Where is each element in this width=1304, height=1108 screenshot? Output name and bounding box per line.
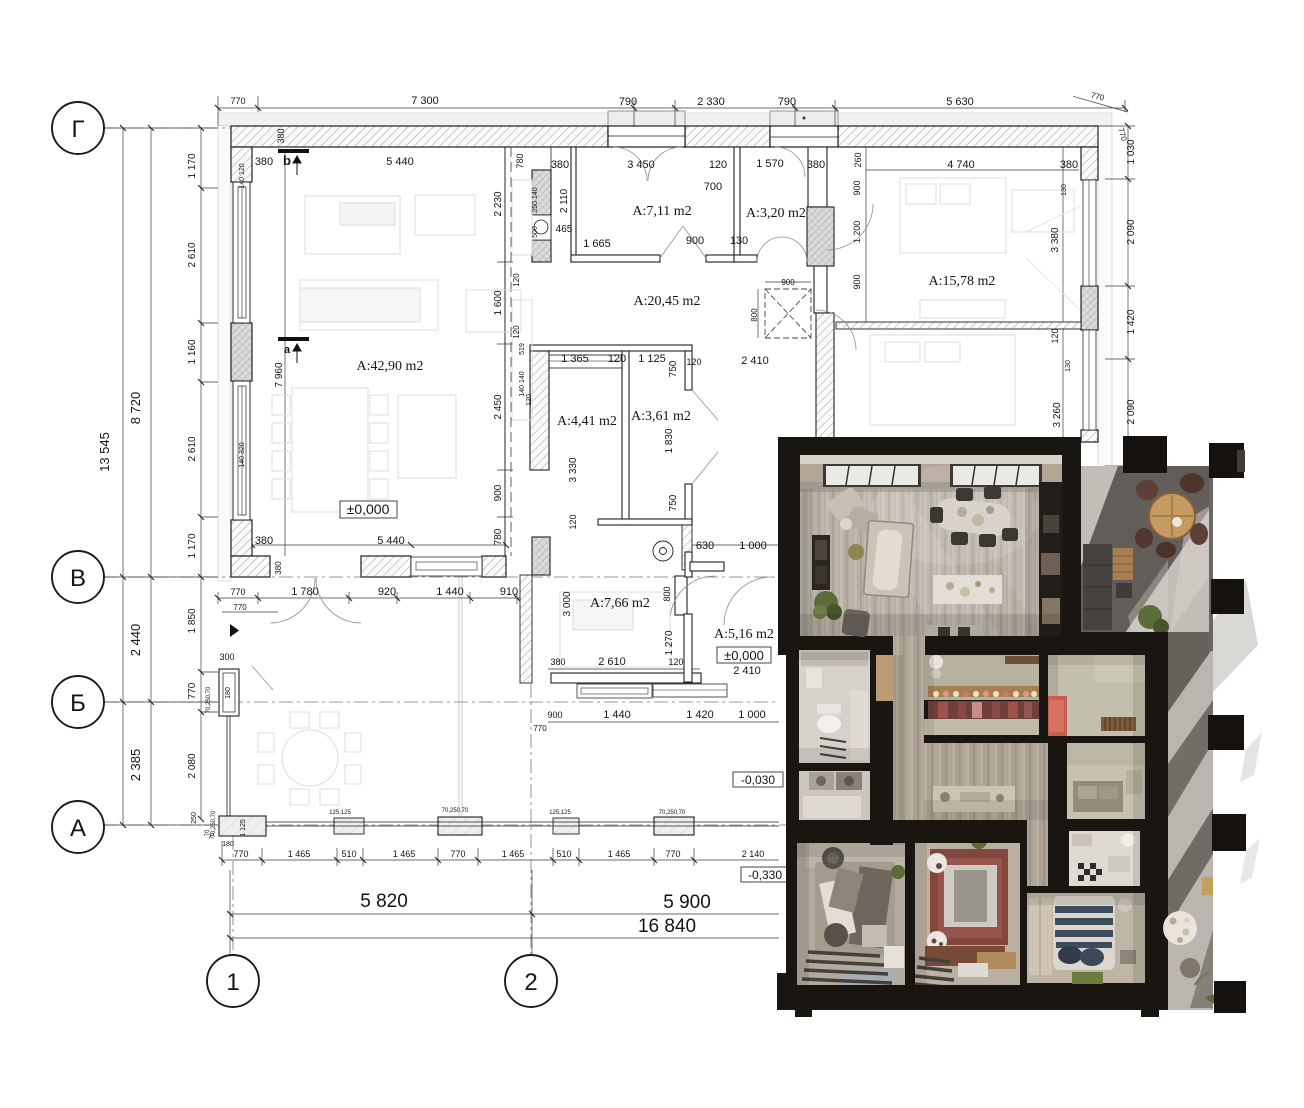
svg-text:780: 780	[515, 153, 525, 168]
svg-text:900: 900	[781, 278, 795, 287]
svg-text:7 300: 7 300	[411, 95, 439, 107]
svg-text:1 000: 1 000	[739, 540, 767, 552]
svg-text:2 610: 2 610	[187, 436, 198, 461]
svg-text:125,125: 125,125	[549, 810, 571, 816]
svg-text:A:7,66 m2: A:7,66 m2	[590, 596, 650, 611]
svg-text:-0,330: -0,330	[748, 868, 782, 882]
svg-text:2 090: 2 090	[1126, 219, 1137, 244]
svg-text:1 160: 1 160	[187, 339, 198, 364]
svg-text:2 450: 2 450	[493, 394, 504, 419]
svg-text:b: b	[283, 153, 291, 168]
svg-text:3 260: 3 260	[1052, 402, 1063, 427]
svg-text:380: 380	[274, 561, 283, 575]
svg-text:2 080: 2 080	[187, 753, 198, 778]
svg-text:Г: Г	[72, 116, 85, 143]
svg-text:800: 800	[662, 586, 672, 601]
svg-text:800: 800	[750, 308, 759, 322]
svg-text:5 900: 5 900	[663, 892, 711, 913]
svg-text:180: 180	[222, 841, 234, 848]
svg-text:1 465: 1 465	[608, 849, 631, 859]
svg-text:В: В	[70, 565, 86, 592]
svg-text:120: 120	[512, 325, 521, 339]
svg-text:2 230: 2 230	[493, 191, 504, 216]
svg-text:2 140: 2 140	[742, 849, 765, 859]
svg-text:2 440: 2 440	[128, 624, 143, 657]
svg-text:1 440: 1 440	[436, 586, 464, 598]
svg-text:A:5,16 m2: A:5,16 m2	[714, 627, 774, 642]
svg-text:120: 120	[1050, 328, 1060, 343]
svg-text:A:7,11 m2: A:7,11 m2	[632, 204, 691, 219]
svg-text:1 125: 1 125	[638, 353, 666, 365]
svg-text:120: 120	[608, 353, 626, 365]
svg-text:510: 510	[556, 849, 571, 859]
svg-text:120: 120	[709, 159, 727, 171]
svg-text:5 440: 5 440	[386, 156, 414, 168]
svg-text:380: 380	[276, 128, 286, 143]
svg-text:900: 900	[547, 710, 562, 720]
svg-text:780: 780	[493, 528, 504, 545]
svg-text:770: 770	[665, 849, 680, 859]
svg-text:8 720: 8 720	[128, 392, 143, 425]
svg-text:1: 1	[226, 969, 239, 996]
svg-text:250: 250	[191, 812, 198, 824]
svg-text:1 465: 1 465	[393, 849, 416, 859]
svg-text:2 385: 2 385	[128, 749, 143, 782]
svg-text:900: 900	[852, 274, 862, 289]
svg-text:1 465: 1 465	[502, 849, 525, 859]
svg-text:1 000: 1 000	[738, 709, 766, 721]
svg-text:770: 770	[230, 587, 245, 597]
svg-text:2 410: 2 410	[741, 355, 769, 367]
svg-text:130: 130	[1065, 360, 1072, 372]
svg-text:3 000: 3 000	[562, 591, 573, 616]
svg-text:630: 630	[696, 540, 714, 552]
svg-text:140 140: 140 140	[519, 371, 526, 396]
svg-text:±0,000: ±0,000	[347, 501, 390, 517]
svg-text:A:4,41 m2: A:4,41 m2	[557, 414, 617, 429]
svg-text:750: 750	[668, 494, 679, 511]
svg-text:3 330: 3 330	[568, 457, 579, 482]
svg-text:770: 770	[450, 849, 465, 859]
svg-text:380: 380	[255, 535, 273, 547]
svg-text:380: 380	[255, 156, 273, 168]
svg-text:770: 770	[187, 682, 198, 699]
svg-text:1 780: 1 780	[291, 586, 319, 598]
svg-text:16 840: 16 840	[638, 916, 696, 937]
svg-text:519: 519	[519, 343, 526, 355]
svg-text:125,125: 125,125	[329, 810, 351, 816]
svg-text:180: 180	[225, 687, 232, 699]
svg-text:±0,000: ±0,000	[724, 648, 764, 663]
svg-text:770: 770	[533, 724, 547, 733]
svg-text:7 960: 7 960	[274, 362, 285, 387]
svg-text:1 830: 1 830	[664, 428, 675, 453]
svg-text:770: 770	[230, 96, 245, 106]
svg-text:1 850: 1 850	[187, 608, 198, 633]
svg-text:1 170: 1 170	[187, 153, 198, 178]
svg-text:А: А	[70, 815, 86, 842]
svg-text:1 420: 1 420	[1126, 309, 1137, 334]
svg-text:1 440: 1 440	[603, 709, 631, 721]
svg-text:380: 380	[550, 657, 565, 667]
svg-text:1 125: 1 125	[240, 819, 247, 837]
svg-text:790: 790	[778, 96, 796, 108]
svg-text:900: 900	[493, 484, 504, 501]
svg-text:13 545: 13 545	[97, 432, 112, 472]
svg-text:910: 910	[500, 586, 518, 598]
svg-text:70,250,70: 70,250,70	[206, 686, 212, 713]
svg-text:140 120: 140 120	[239, 163, 246, 188]
svg-text:120: 120	[668, 657, 683, 667]
svg-text:70,250,70: 70,250,70	[659, 810, 686, 816]
svg-text:4 740: 4 740	[947, 159, 975, 171]
svg-text:500: 500	[532, 226, 539, 238]
svg-text:380: 380	[1060, 159, 1078, 171]
svg-text:70,250,70: 70,250,70	[211, 810, 217, 837]
svg-text:-0,030: -0,030	[741, 773, 775, 787]
svg-text:2 110: 2 110	[559, 188, 570, 213]
svg-text:1 170: 1 170	[187, 533, 198, 558]
svg-text:770: 770	[233, 603, 247, 612]
svg-text:A:15,78 m2: A:15,78 m2	[929, 274, 996, 289]
svg-text:5 630: 5 630	[946, 96, 974, 108]
svg-text:1 200: 1 200	[852, 221, 862, 244]
svg-text:2 090: 2 090	[1126, 399, 1137, 424]
svg-text:2 330: 2 330	[697, 96, 725, 108]
svg-text:1 600: 1 600	[493, 290, 504, 315]
svg-text:1 365: 1 365	[561, 353, 589, 365]
svg-text:2 610: 2 610	[598, 656, 626, 668]
svg-text:900: 900	[852, 180, 862, 195]
svg-text:5 820: 5 820	[360, 891, 408, 912]
svg-text:3 450: 3 450	[627, 159, 655, 171]
svg-text:A:3,20 m2: A:3,20 m2	[746, 206, 806, 221]
svg-text:120: 120	[686, 357, 701, 367]
svg-text:380: 380	[807, 159, 825, 171]
svg-text:920: 920	[378, 586, 396, 598]
svg-text:1 465: 1 465	[288, 849, 311, 859]
svg-text:A:3,61 m2: A:3,61 m2	[631, 409, 691, 424]
svg-text:3 380: 3 380	[1050, 227, 1061, 252]
svg-text:1 030: 1 030	[1126, 139, 1137, 164]
svg-text:790: 790	[619, 96, 637, 108]
svg-text:260: 260	[853, 152, 863, 167]
svg-text:2 410: 2 410	[733, 665, 761, 677]
svg-text:130: 130	[1061, 184, 1068, 196]
svg-text:510: 510	[341, 849, 356, 859]
svg-text:130: 130	[730, 235, 748, 247]
svg-text:2: 2	[524, 969, 537, 996]
svg-text:380: 380	[551, 159, 569, 171]
svg-text:A:42,90 m2: A:42,90 m2	[357, 359, 424, 374]
svg-text:120: 120	[568, 514, 578, 529]
svg-text:1 665: 1 665	[583, 238, 611, 250]
svg-text:a: a	[284, 344, 291, 356]
svg-text:700: 700	[704, 181, 722, 193]
svg-text:770: 770	[233, 849, 248, 859]
svg-text:1 420: 1 420	[686, 709, 714, 721]
svg-text:140 320: 140 320	[239, 442, 246, 467]
svg-text:465: 465	[556, 224, 573, 235]
svg-text:Б: Б	[70, 690, 86, 717]
svg-text:5 440: 5 440	[377, 535, 405, 547]
svg-text:120: 120	[512, 273, 521, 287]
svg-text:250 140: 250 140	[532, 187, 539, 212]
svg-text:1 570: 1 570	[756, 158, 784, 170]
svg-text:70,250,70: 70,250,70	[442, 808, 469, 814]
svg-text:900: 900	[686, 235, 704, 247]
svg-text:1 270: 1 270	[664, 630, 675, 655]
svg-text:120: 120	[526, 394, 533, 406]
svg-text:750: 750	[668, 360, 679, 377]
svg-text:2 610: 2 610	[187, 242, 198, 267]
svg-text:A:20,45 m2: A:20,45 m2	[634, 294, 701, 309]
svg-text:300: 300	[219, 652, 234, 662]
